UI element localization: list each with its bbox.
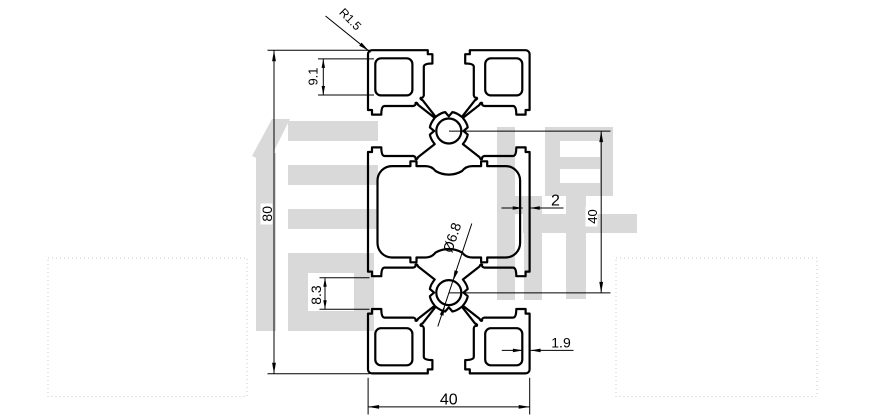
svg-text:80: 80 bbox=[259, 206, 275, 222]
svg-text:8.3: 8.3 bbox=[308, 285, 324, 305]
svg-text:9.1: 9.1 bbox=[306, 67, 321, 85]
svg-text:1.9: 1.9 bbox=[551, 335, 571, 351]
svg-text:2: 2 bbox=[551, 193, 560, 210]
svg-text:40: 40 bbox=[440, 392, 458, 409]
svg-text:40: 40 bbox=[585, 209, 600, 223]
